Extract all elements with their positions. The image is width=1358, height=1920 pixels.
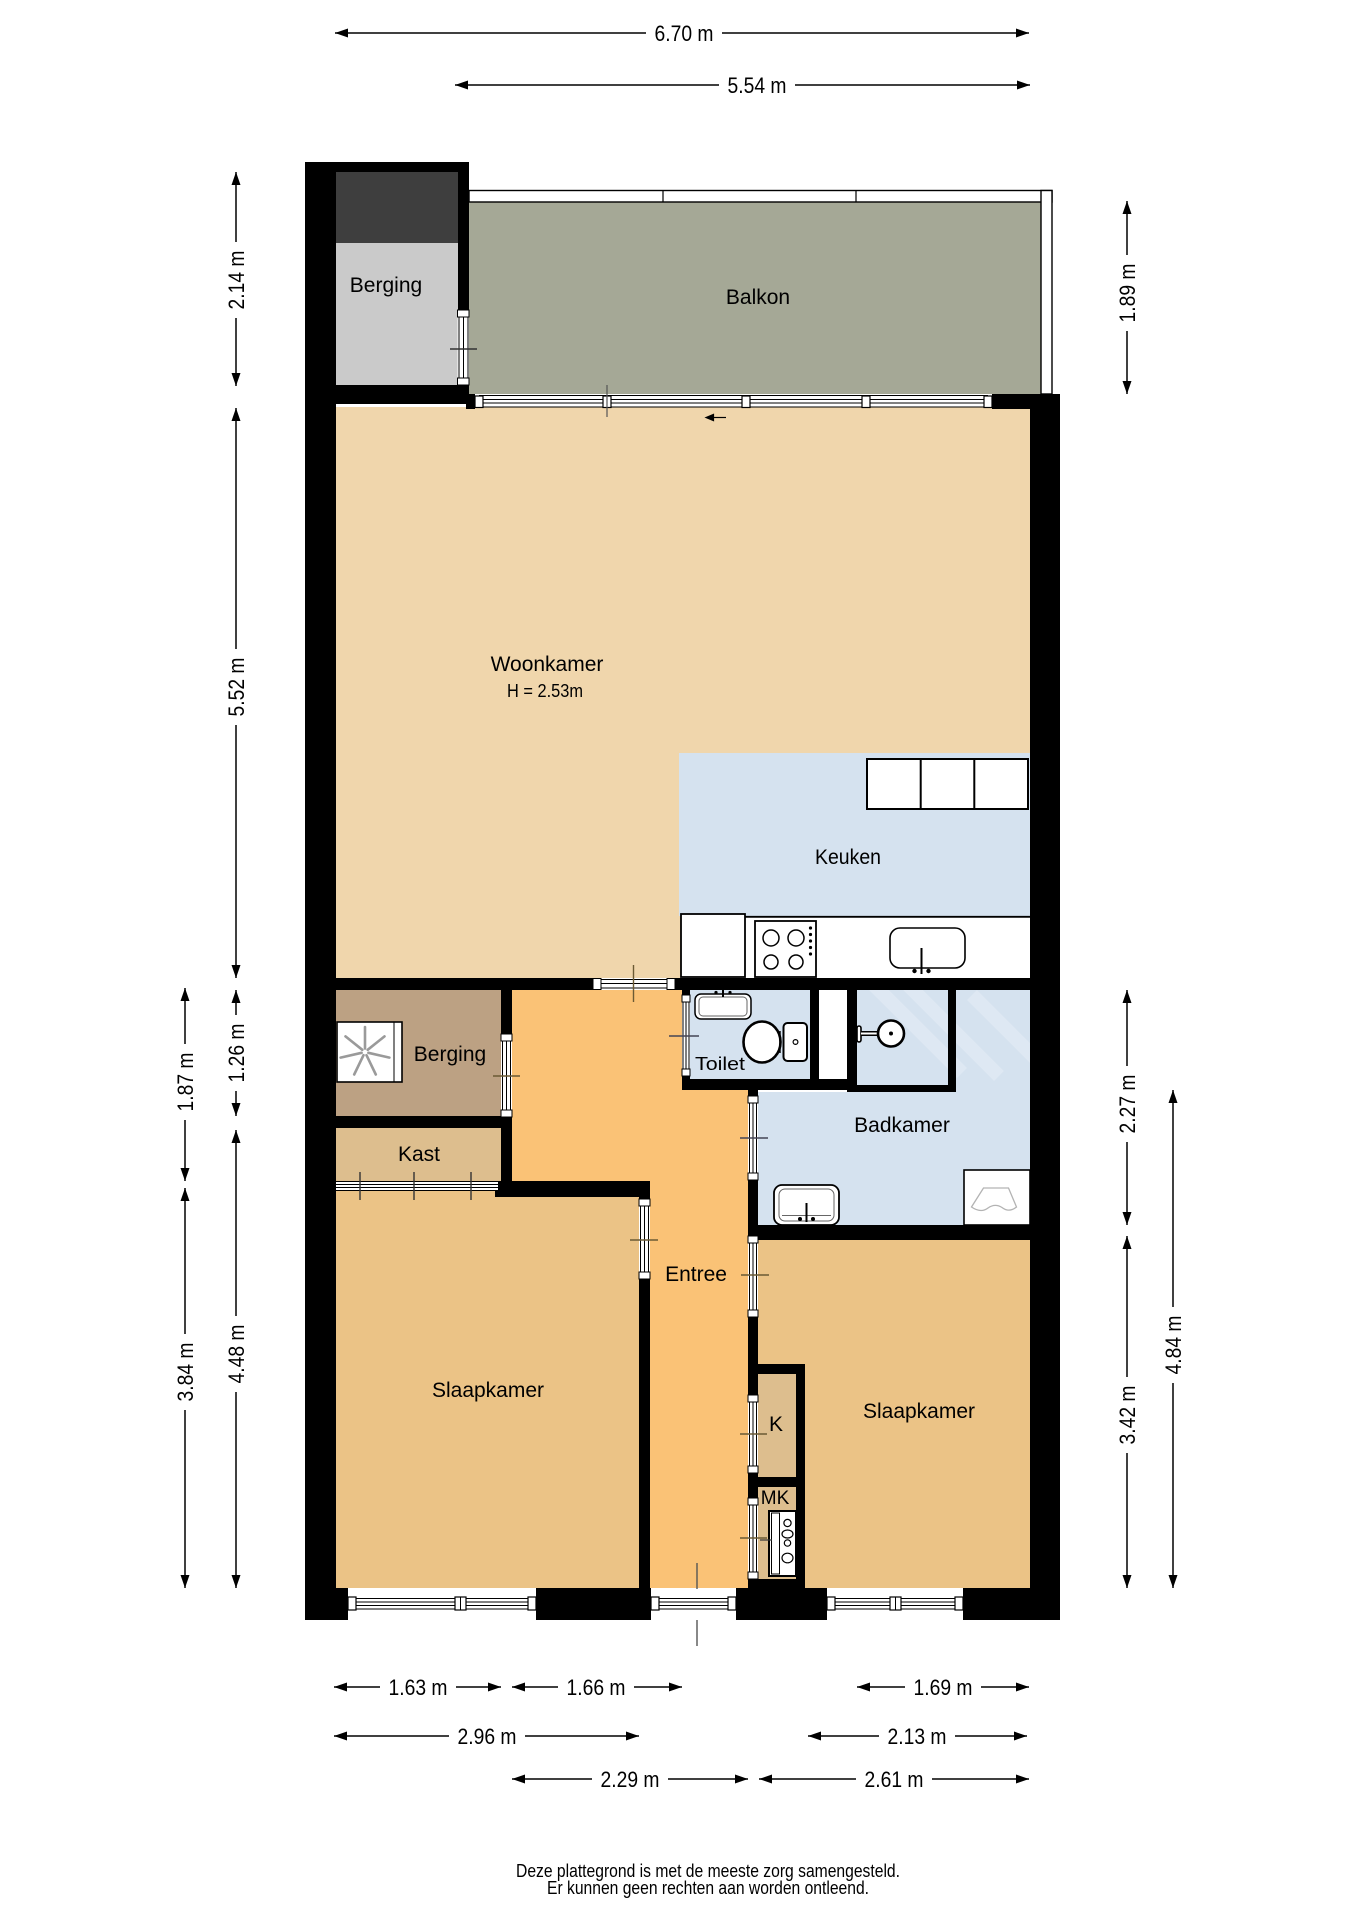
svg-text:Slaapkamer: Slaapkamer [432, 1379, 544, 1402]
svg-text:1.66 m: 1.66 m [567, 1675, 626, 1700]
svg-text:1.26 m: 1.26 m [224, 1024, 249, 1083]
svg-text:5.54 m: 5.54 m [728, 73, 787, 98]
svg-text:5.52 m: 5.52 m [224, 658, 249, 717]
svg-text:1.63 m: 1.63 m [389, 1675, 448, 1700]
svg-text:3.42 m: 3.42 m [1115, 1386, 1140, 1445]
svg-text:2.14 m: 2.14 m [224, 251, 249, 310]
svg-text:Balkon: Balkon [726, 286, 790, 309]
svg-text:Kast: Kast [398, 1143, 440, 1166]
svg-text:2.27 m: 2.27 m [1115, 1075, 1140, 1134]
svg-text:6.70 m: 6.70 m [655, 21, 714, 46]
svg-text:Keuken: Keuken [815, 846, 881, 869]
svg-text:Slaapkamer: Slaapkamer [863, 1400, 975, 1423]
svg-text:3.84 m: 3.84 m [173, 1343, 198, 1402]
svg-text:2.29 m: 2.29 m [601, 1767, 660, 1792]
svg-text:Woonkamer: Woonkamer [491, 653, 604, 676]
svg-text:2.96 m: 2.96 m [458, 1724, 517, 1749]
svg-text:2.61 m: 2.61 m [865, 1767, 924, 1792]
svg-text:4.84 m: 4.84 m [1161, 1316, 1186, 1375]
svg-text:Entree: Entree [665, 1263, 727, 1286]
svg-text:Toilet: Toilet [695, 1054, 745, 1074]
svg-text:1.87 m: 1.87 m [173, 1053, 198, 1112]
svg-text:MK: MK [761, 1488, 790, 1509]
svg-text:Badkamer: Badkamer [854, 1114, 950, 1137]
svg-text:4.48 m: 4.48 m [224, 1325, 249, 1384]
svg-text:Er kunnen geen rechten aan wor: Er kunnen geen rechten aan worden ontlee… [547, 1877, 869, 1898]
svg-text:2.13 m: 2.13 m [888, 1724, 947, 1749]
svg-text:1.69 m: 1.69 m [914, 1675, 973, 1700]
svg-text:1.89 m: 1.89 m [1115, 264, 1140, 323]
svg-text:Berging: Berging [350, 274, 422, 297]
svg-text:K: K [769, 1413, 783, 1436]
svg-text:Berging: Berging [414, 1043, 486, 1066]
svg-text:H = 2.53m: H = 2.53m [507, 681, 583, 701]
